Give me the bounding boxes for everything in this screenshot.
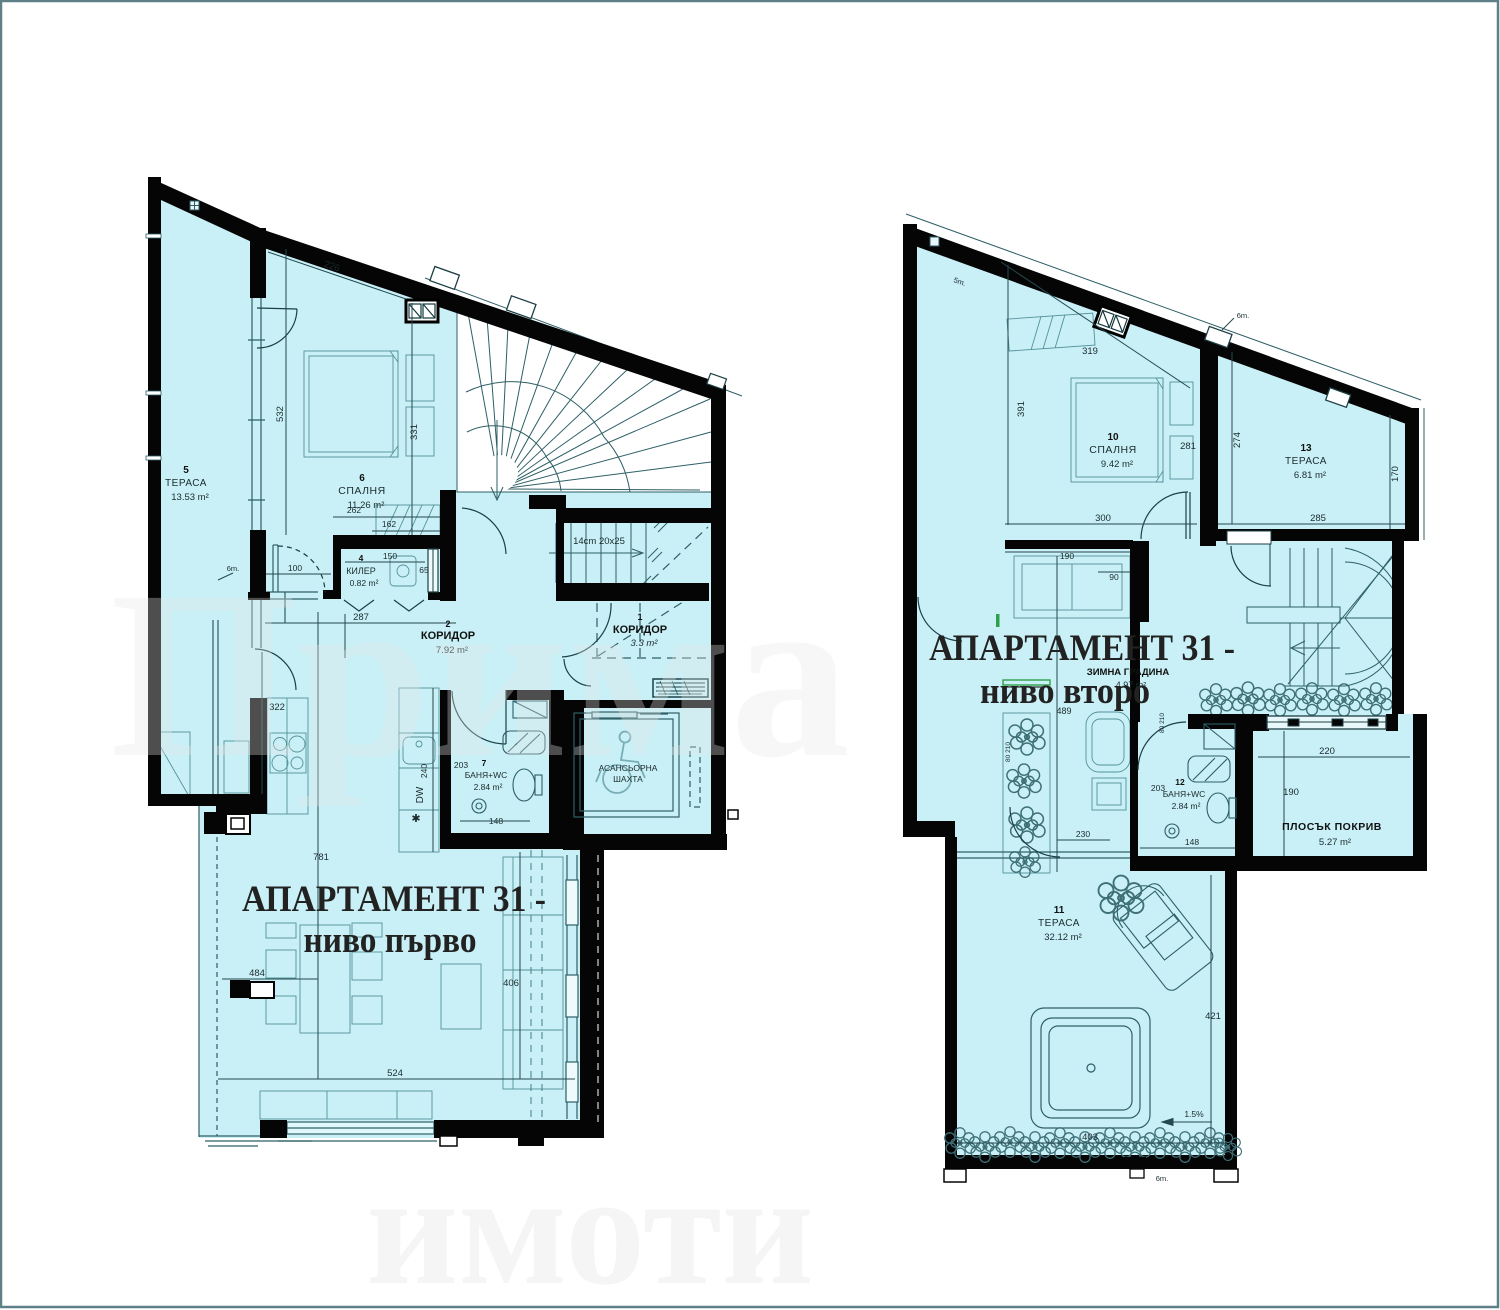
svg-text:300: 300 [1095, 513, 1111, 524]
svg-text:421: 421 [1205, 1011, 1221, 1022]
svg-text:6: 6 [359, 473, 365, 484]
svg-text:285: 285 [1310, 513, 1326, 524]
svg-text:406: 406 [503, 978, 519, 989]
svg-text:ТЕРАСА: ТЕРАСА [1285, 456, 1327, 467]
svg-text:✱: ✱ [411, 813, 420, 825]
svg-text:484: 484 [249, 968, 265, 979]
svg-text:БАНЯ+WC: БАНЯ+WC [1163, 789, 1205, 799]
svg-text:80 210: 80 210 [1159, 713, 1166, 733]
svg-text:12: 12 [1175, 777, 1185, 787]
svg-text:281: 281 [1180, 441, 1196, 452]
svg-text:СПАЛНЯ: СПАЛНЯ [338, 485, 385, 497]
svg-text:ТЕРАСА: ТЕРАСА [165, 478, 207, 489]
svg-text:13: 13 [1300, 443, 1312, 454]
svg-text:532: 532 [275, 406, 286, 422]
svg-text:6m.: 6m. [1237, 311, 1250, 320]
svg-text:90: 90 [1109, 572, 1119, 582]
svg-text:АПАРТАМЕНТ 31 -: АПАРТАМЕНТ 31 - [929, 628, 1235, 669]
svg-text:190: 190 [1283, 787, 1299, 798]
svg-text:148: 148 [1185, 837, 1199, 847]
svg-text:230: 230 [1076, 829, 1090, 839]
svg-text:ниво второ: ниво второ [980, 671, 1150, 712]
svg-text:403: 403 [1082, 1132, 1098, 1143]
svg-text:2.84 m²: 2.84 m² [1172, 801, 1201, 811]
svg-text:32.12 m²: 32.12 m² [1044, 932, 1082, 943]
svg-text:262: 262 [347, 505, 361, 515]
svg-text:5: 5 [183, 465, 189, 476]
svg-text:331: 331 [409, 424, 420, 440]
svg-text:190: 190 [1060, 551, 1074, 561]
svg-text:Прима: Прима [110, 541, 850, 807]
svg-text:391: 391 [1016, 401, 1027, 417]
svg-text:9.42 m²: 9.42 m² [1101, 459, 1133, 470]
svg-text:имоти: имоти [366, 1140, 814, 1310]
svg-text:170: 170 [1390, 466, 1401, 482]
svg-text:ТЕРАСА: ТЕРАСА [1038, 918, 1080, 929]
svg-text:162: 162 [382, 519, 396, 529]
svg-text:781: 781 [313, 852, 329, 863]
svg-text:13.53 m²: 13.53 m² [171, 492, 209, 503]
svg-text:220: 220 [1319, 746, 1335, 757]
svg-text:11: 11 [1054, 905, 1065, 916]
svg-text:319: 319 [1082, 346, 1098, 357]
svg-text:СПАЛНЯ: СПАЛНЯ [1089, 444, 1136, 456]
svg-text:524: 524 [387, 1068, 403, 1079]
svg-text:10: 10 [1107, 432, 1119, 443]
svg-text:80 210: 80 210 [1005, 742, 1012, 762]
svg-text:6.81 m²: 6.81 m² [1294, 470, 1326, 481]
svg-text:5.27 m²: 5.27 m² [1319, 837, 1351, 848]
svg-text:ниво първо: ниво първо [304, 920, 477, 961]
svg-text:АПАРТАМЕНТ 31 -: АПАРТАМЕНТ 31 - [242, 879, 546, 920]
svg-text:ПЛОСЪК ПОКРИВ: ПЛОСЪК ПОКРИВ [1282, 821, 1382, 833]
svg-text:1.5%: 1.5% [1184, 1109, 1204, 1119]
svg-text:274: 274 [1232, 432, 1243, 448]
svg-text:6m.: 6m. [1156, 1174, 1169, 1183]
